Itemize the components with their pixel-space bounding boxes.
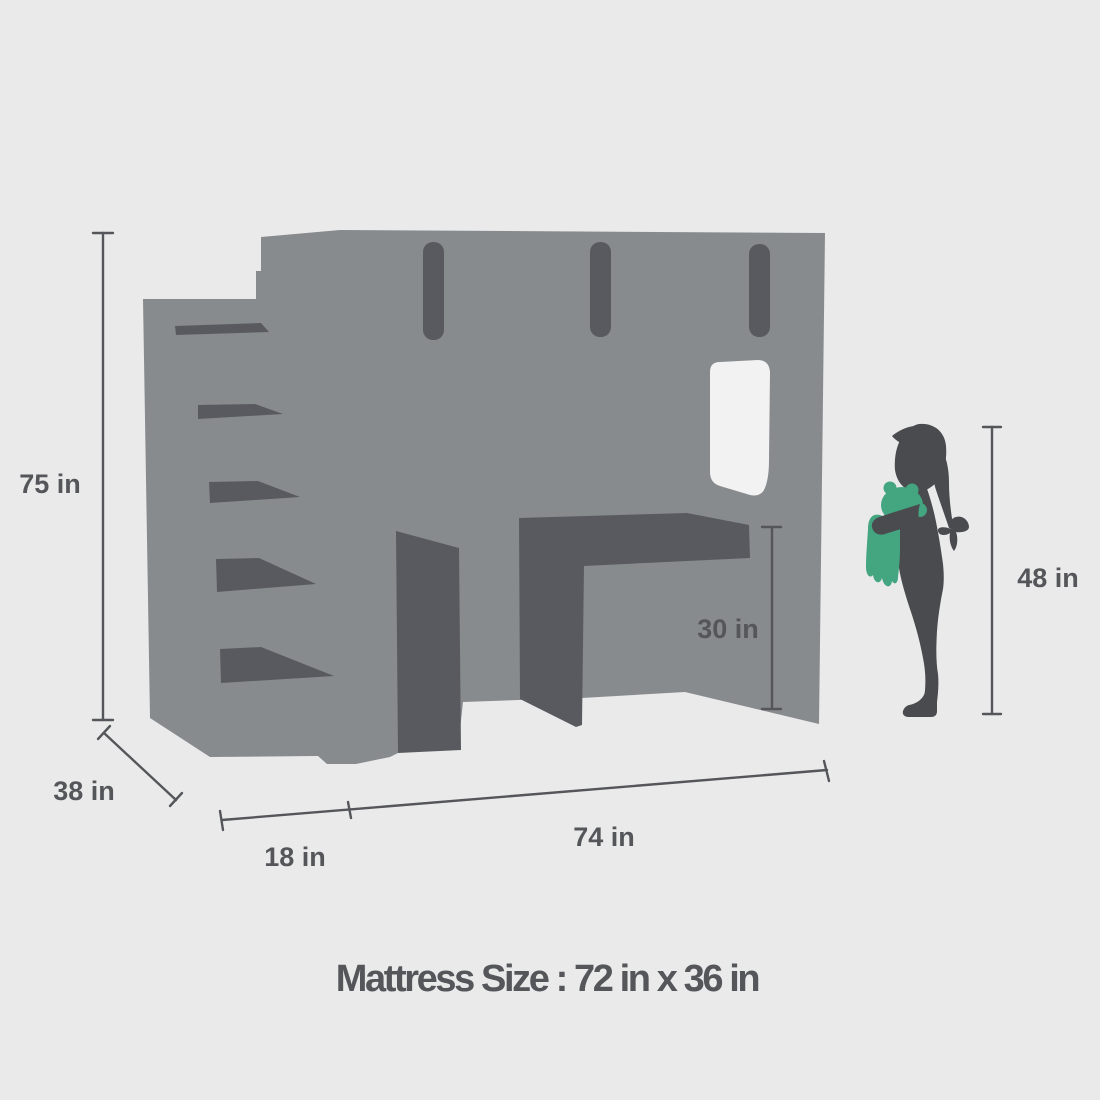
svg-text:18 in: 18 in (264, 842, 326, 872)
svg-text:48 in: 48 in (1017, 563, 1079, 593)
svg-text:74 in: 74 in (573, 822, 635, 852)
svg-text:38 in: 38 in (53, 776, 115, 806)
svg-text:Mattress Size : 72 in x 36 in: Mattress Size : 72 in x 36 in (336, 958, 759, 1000)
svg-text:30 in: 30 in (697, 614, 759, 644)
svg-text:75 in: 75 in (19, 469, 81, 499)
